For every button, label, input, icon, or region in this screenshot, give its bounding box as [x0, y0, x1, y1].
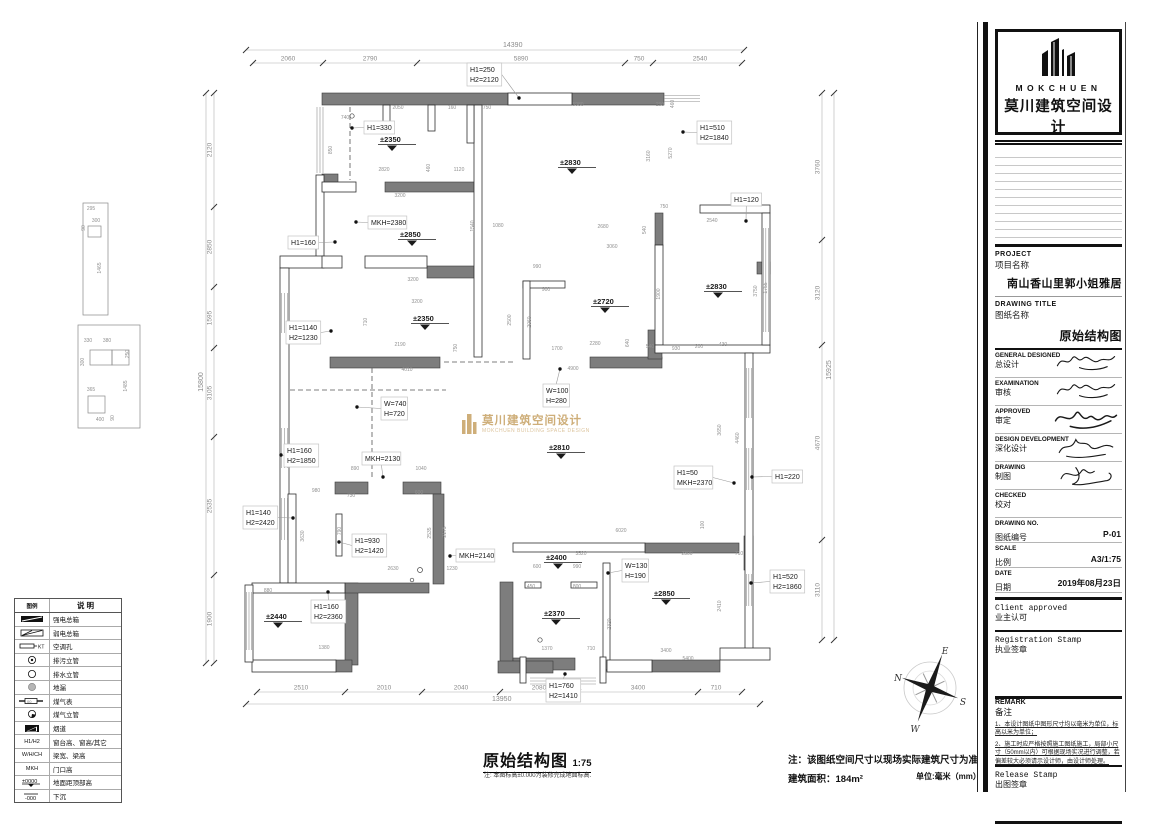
dimension-text: 1080: [492, 223, 503, 229]
dimension-text: 90: [110, 415, 116, 421]
legend-label: 排水立管: [50, 669, 121, 679]
dimension-text: 3105: [207, 385, 214, 400]
dimension-text: 4900: [567, 366, 578, 372]
legend-row: 弱电总箱: [15, 627, 121, 641]
dimension-text: 2540: [693, 56, 708, 63]
dimension-text: 710: [363, 318, 369, 327]
elev-icon: ±0000: [15, 776, 50, 789]
legend-table: 图例 说 明 强电总箱弱电总箱KT空调孔排污立管排水立管地漏00煤气表煤气立管烟…: [14, 598, 122, 803]
title-block: MOKCHUEN 莫川建筑空间设计 PROJECT 项目名称 南山香山里郭小姐雅…: [977, 22, 1128, 792]
dimension-text: 300: [80, 358, 86, 367]
dimension-text: 2080: [532, 685, 547, 692]
sign-row-checked: CHECKED校对: [995, 490, 1122, 518]
elevation-marker: ±2850: [654, 589, 675, 598]
watermark-subtitle: MOKCHUEN BUILDING SPACE DESIGN: [482, 428, 590, 434]
signature: [1050, 351, 1122, 375]
dimension-text: 800: [573, 584, 582, 590]
legend-header: 图例 说 明: [15, 599, 121, 613]
dimension-text: 990: [533, 264, 542, 270]
sign-row-general-designed: GENERAL DESIGNED总设计: [995, 350, 1122, 378]
legend-body: 强电总箱弱电总箱KT空调孔排污立管排水立管地漏00煤气表煤气立管烟道H1/H2窗…: [15, 613, 121, 802]
dimension-text: 400: [96, 417, 105, 423]
dimension-text: 300: [92, 218, 101, 224]
brand-name: MOKCHUEN: [998, 83, 1119, 93]
legend-row: KT空调孔: [15, 640, 121, 654]
text-symbol: MKH: [15, 763, 50, 776]
plan-label-text: H2=2120: [470, 77, 499, 84]
plan-label-text: H1=330: [367, 125, 392, 132]
dimension-text: 1465: [97, 262, 103, 273]
compass-east-label: E: [941, 647, 949, 657]
gas-meter-icon: 00: [15, 695, 50, 708]
plan-label-text: H1=160: [291, 240, 316, 247]
dimension-text: 3160: [646, 150, 652, 161]
dimension-text: 1540: [470, 220, 476, 231]
plan-label-text: MKH=2370: [677, 480, 712, 487]
dimension-text: 750: [483, 105, 492, 111]
plan-label-text: H2=1850: [287, 458, 316, 465]
dimension-text: 930: [672, 346, 681, 352]
overall-dimension: 14390: [503, 42, 523, 49]
release-stamp-en: Release Stamp: [995, 771, 1122, 781]
legend-label: 下沉: [50, 791, 121, 801]
legend-row: 煤气立管: [15, 708, 121, 722]
dimension-text: 2535: [427, 527, 433, 538]
svg-text:-000: -000: [25, 796, 36, 801]
sign-row-approved: APPROVED审定: [995, 406, 1122, 434]
dimension-text: 5270: [668, 147, 674, 158]
dimension-text: 3400: [631, 685, 646, 692]
detail-callout-boxes: [78, 203, 140, 428]
watermark-title: 莫川建筑空间设计: [482, 412, 590, 428]
text-symbol: H1/H2: [15, 735, 50, 748]
logo-box: MOKCHUEN 莫川建筑空间设计: [995, 29, 1122, 135]
plan-label-text: H2=1230: [289, 335, 318, 342]
dimension-text: 3120: [815, 285, 822, 300]
legend-row: 强电总箱: [15, 613, 121, 627]
elevation-marker: ±2720: [593, 297, 614, 306]
sink-icon: -000: [15, 790, 50, 803]
legend-row: 排污立管: [15, 654, 121, 668]
dimension-text: 1700: [551, 346, 562, 352]
plan-label-text: H1=250: [470, 67, 495, 74]
dimension-text: 3400: [660, 648, 671, 654]
brand-name-cn: 莫川建筑空间设计: [998, 95, 1119, 137]
site-note: 注：该图纸空间尺寸以现场实际建筑尺寸为准。: [788, 752, 988, 766]
remark-note: 1、本设计图纸中图形尺寸均以毫米为单位，标高以米为单位；: [995, 721, 1122, 738]
plan-label-text: W=130: [625, 563, 647, 570]
plan-label-text: H=190: [625, 573, 646, 580]
dimension-text: 2280: [589, 341, 600, 347]
legend-label: 空调孔: [50, 641, 121, 651]
dimension-text: 1230: [446, 566, 457, 572]
release-stamp-cn: 出图签章: [995, 781, 1122, 791]
dimension-text: 540: [642, 226, 648, 235]
overall-dimension: 13950: [492, 696, 512, 703]
dimension-text: 3200: [407, 277, 418, 283]
project-label-cn: 项目名称: [995, 259, 1122, 271]
dimension-text: 4670: [815, 435, 822, 450]
signature: [1050, 379, 1122, 403]
divider: [995, 140, 1122, 142]
dimension-text: 3110: [815, 583, 822, 597]
remark-label-cn: 备注: [995, 706, 1122, 718]
watermark: 莫川建筑空间设计 MOKCHUEN BUILDING SPACE DESIGN: [462, 412, 590, 436]
dimension-text: 730: [347, 493, 356, 499]
plan-label-text: MKH=2130: [365, 456, 400, 463]
sewage-riser-icon: [15, 654, 50, 667]
legend-label: 煤气立管: [50, 709, 121, 719]
dimension-text: 2500: [507, 314, 513, 325]
sign-row-examination: EXAMINATION审核: [995, 378, 1122, 406]
plan-label-text: H2=1860: [773, 584, 802, 591]
dimension-text: 160: [448, 105, 457, 111]
legend-header-desc: 说 明: [50, 600, 121, 611]
registration-stamp-en: Registration Stamp: [995, 636, 1122, 646]
plan-label-text: H1=160: [287, 448, 312, 455]
compass-south-label: S: [960, 698, 966, 708]
dimension-text: 3060: [606, 244, 617, 250]
legend-row: 地漏: [15, 681, 121, 695]
legend-row: W/H/CH梁宽、梁高: [15, 749, 121, 763]
svg-text:KT: KT: [38, 645, 44, 651]
plan-label-text: H1=160: [314, 604, 339, 611]
plan-label-text: H1=510: [700, 125, 725, 132]
legend-row: 排水立管: [15, 667, 121, 681]
legend-row: -000下沉: [15, 790, 121, 803]
info-row-date: DATE日期2019年08月23日: [995, 568, 1122, 593]
registration-stamp-cn: 执业签章: [995, 646, 1122, 656]
dimension-text: 2850: [207, 239, 214, 254]
release-stamp-block: Release Stamp 出图签章: [995, 767, 1122, 817]
signature: [1050, 407, 1122, 431]
dimension-text: 460: [426, 164, 432, 173]
dimension-text: 2535: [207, 498, 214, 513]
dimension-text: 2410: [717, 600, 723, 611]
dimension-text: 1380: [318, 645, 329, 651]
dimension-text: 2060: [281, 56, 296, 63]
dimension-text: 450: [527, 584, 536, 590]
client-approved-block: Client approved 业主认可: [995, 600, 1122, 626]
dimension-text: 2630: [387, 566, 398, 572]
weak-power-box-icon: [15, 627, 50, 640]
elevation-marker: ±2830: [706, 282, 727, 291]
plan-label-text: H2=1420: [355, 548, 384, 555]
plan-label-text: H2=1410: [549, 693, 578, 700]
legend-row: 烟道: [15, 722, 121, 736]
dimension-text: 5980: [572, 102, 583, 108]
sheet-scale: 1:75: [572, 758, 591, 769]
dimension-text: 6020: [615, 528, 626, 534]
plan-label-text: H1=50: [677, 470, 698, 477]
dimension-text: 5400: [682, 656, 693, 662]
dimension-text: 5890: [514, 56, 529, 63]
plan-label-text: H1=220: [775, 474, 800, 481]
dimension-text: 2820: [378, 167, 389, 173]
dimension-text: 250: [125, 350, 131, 359]
dimension-text: 2010: [377, 685, 392, 692]
legend-label: 烟道: [50, 723, 121, 733]
dimension-text: 710: [735, 551, 744, 557]
plan-label-text: H1=1140: [289, 325, 317, 332]
legend-row: MKH门口高: [15, 763, 121, 777]
dimension-text: 750: [634, 56, 645, 63]
remark-block: REMARK 备注 1、本设计图纸中图形尺寸均以毫米为单位，标高以米为单位；2、…: [995, 699, 1122, 761]
dimension-text: 200: [695, 344, 704, 350]
dimension-text: 540: [646, 344, 655, 350]
project-label-en: PROJECT: [995, 251, 1122, 258]
plan-label-text: H1=140: [246, 510, 271, 517]
drawing-title-label-cn: 图纸名称: [995, 309, 1122, 321]
dimension-text: 710: [711, 685, 722, 692]
ac-hole-icon: KT: [15, 640, 50, 653]
dimension-text: 880: [264, 588, 273, 594]
dimension-text: 750: [660, 204, 669, 210]
compass-rose: E N S W: [893, 647, 966, 735]
legend-label: 窗台高、窗高/其它: [50, 737, 121, 747]
plan-label-text: H1=930: [355, 538, 380, 545]
legend-label: 门口高: [50, 764, 121, 774]
dimension-text: 2320: [607, 618, 613, 629]
legend-label: 排污立管: [50, 655, 121, 665]
drawing-title-value: 原始结构图: [995, 327, 1122, 344]
dimension-text: 3520: [575, 551, 586, 557]
dimension-text: 850: [328, 146, 334, 155]
legend-label: 弱电总箱: [50, 628, 121, 638]
annotation-layer: 2060279058907502540251020102040208034007…: [80, 42, 837, 707]
sheet-title-note: 注: 本图标高±0.000为装修完成地面标高.: [484, 770, 591, 779]
overall-dimension: 15800: [198, 372, 205, 392]
elevation-marker: ±2370: [544, 609, 565, 618]
title-block-bottom-border: [995, 821, 1122, 824]
plan-label-text: W=740: [384, 401, 406, 408]
remark-note: 2、施工时应严格按照施工图纸施工，局部小尺寸（50mm以内）可根据现场实况进行调…: [995, 741, 1122, 767]
dimension-text: 290: [656, 102, 665, 108]
elevation-marker: ±2440: [266, 612, 287, 621]
plan-label-text: H=720: [384, 411, 405, 418]
dimension-text: 1595: [207, 310, 214, 325]
dimension-text: 295: [87, 206, 96, 212]
plan-label-text: H1=760: [549, 683, 574, 690]
signature-rows: GENERAL DESIGNED总设计EXAMINATION审核APPROVED…: [995, 350, 1122, 518]
building-area: 建筑面积：184m²: [788, 771, 863, 785]
dimension-text: 1040: [415, 466, 426, 472]
dimension-text: 365: [87, 387, 96, 393]
text-symbol: W/H/CH: [15, 749, 50, 762]
drain-riser-icon: [15, 667, 50, 680]
signature: [1050, 435, 1122, 459]
plan-label-text: H2=2420: [246, 520, 275, 527]
dimension-text: 2040: [454, 685, 469, 692]
compass-west-label: W: [910, 725, 920, 735]
flue-icon: [15, 722, 50, 735]
dimension-text: 4010: [401, 367, 412, 373]
dimension-text: 2790: [363, 56, 378, 63]
strong-power-box-icon: [15, 613, 50, 626]
project-section: PROJECT 项目名称 南山香山里郭小姐雅居: [995, 247, 1122, 291]
elevation-marker: ±2400: [546, 553, 567, 562]
remark-label-en: REMARK: [995, 699, 1122, 706]
legend-header-symbol: 图例: [15, 599, 50, 612]
dimension-text: 100: [700, 521, 706, 530]
title-block-border: [1125, 22, 1126, 792]
dimension-text: 790: [337, 527, 343, 536]
dimension-text: 1900: [207, 611, 214, 626]
elevation-marker: ±2350: [413, 314, 434, 323]
dimension-text: 3650: [717, 424, 723, 435]
plan-label-text: MKH=2380: [371, 220, 406, 227]
dimension-text: 3750: [753, 285, 759, 296]
dimension-text: 750: [453, 344, 459, 353]
dimension-text: 900: [542, 287, 551, 293]
elevation-marker: ±2810: [549, 443, 570, 452]
dimension-text: 3630: [300, 530, 306, 541]
dimension-text: 1485: [123, 380, 129, 391]
legend-label: 煤气表: [50, 696, 121, 706]
contact-lines: [995, 150, 1122, 240]
client-approved-en: Client approved: [995, 604, 1122, 614]
elevation-marker: ±2850: [400, 230, 421, 239]
compass-north-label: N: [893, 674, 903, 684]
signature: [1050, 463, 1122, 487]
unit-note: 单位:毫米（mm）: [916, 771, 981, 782]
dimension-text: 4460: [735, 432, 741, 443]
dimension-text: 3200: [411, 299, 422, 305]
info-row-drawing-no-: DRAWING NO.图纸编号P-01: [995, 518, 1122, 543]
dimension-text: 1370: [541, 646, 552, 652]
dimension-text: 980: [312, 488, 321, 494]
info-rows: DRAWING NO.图纸编号P-01SCALE比例A3/1:75DATE日期2…: [995, 518, 1122, 593]
plumbing-symbols: [350, 114, 542, 642]
client-approved-cn: 业主认可: [995, 614, 1122, 624]
dimension-text: 430: [719, 342, 728, 348]
dimension-text: 740: [341, 115, 350, 121]
project-name: 南山香山里郭小姐雅居: [995, 275, 1122, 291]
dimension-text: 640: [625, 339, 631, 348]
dimension-text: 380: [103, 338, 112, 344]
overall-dimension: 15925: [826, 360, 833, 380]
dimension-text: 3760: [815, 159, 822, 174]
dimension-text: 990: [573, 564, 582, 570]
dimension-text: 1120: [454, 167, 465, 173]
plan-label-text: H2=1840: [700, 135, 729, 142]
registration-stamp-block: Registration Stamp 执业签章: [995, 632, 1122, 692]
plan-label-text: H1=520: [773, 574, 798, 581]
plan-label-text: H=280: [546, 398, 567, 405]
mokchuen-logo-icon: [1038, 36, 1080, 76]
gas-riser-icon: [15, 708, 50, 721]
legend-label: 地面距顶部高: [50, 777, 121, 787]
plan-label-text: H1=120: [734, 197, 759, 204]
legend-label: 地漏: [50, 682, 121, 692]
legend-label: 强电总箱: [50, 614, 121, 624]
plan-label-text: W=100: [546, 388, 568, 395]
dimension-text: 2050: [392, 105, 403, 111]
dimension-text: 2060: [527, 316, 533, 327]
sheet-title-text: 原始结构图: [483, 753, 568, 770]
dimension-text: 2680: [597, 224, 608, 230]
sign-row-drawing: DRAWING制图: [995, 462, 1122, 490]
floor-drain-icon: [15, 681, 50, 694]
dimension-text: 2540: [706, 218, 717, 224]
dimension-text: 1755: [763, 282, 769, 293]
dimension-text: 3200: [394, 193, 405, 199]
drawing-title-section: DRAWING TITLE 图纸名称 原始结构图: [995, 297, 1122, 344]
concrete-walls: [322, 93, 770, 673]
sign-row-design-development: DESIGN DEVELOPMENT深化设计: [995, 434, 1122, 462]
legend-row: H1/H2窗台高、窗高/其它: [15, 735, 121, 749]
dimension-text: 710: [587, 646, 596, 652]
drawing-title-label-en: DRAWING TITLE: [995, 301, 1122, 308]
dimension-text: 90: [81, 225, 87, 231]
title-block-bar: [983, 22, 988, 792]
plan-label-text: MKH=2140: [459, 553, 494, 560]
plan-label-text: H2=2360: [314, 614, 343, 621]
legend-label: 梁宽、梁高: [50, 750, 121, 760]
svg-text:00: 00: [27, 699, 32, 704]
dimension-text: 460: [670, 100, 676, 109]
dimension-text: 2120: [207, 142, 214, 157]
dimension-text: 330: [84, 338, 93, 344]
legend-row: 00煤气表: [15, 695, 121, 709]
dimension-text: 890: [351, 466, 360, 472]
dimension-text: 600: [533, 564, 542, 570]
dimension-text: 2190: [394, 342, 405, 348]
dimension-text: 2300: [681, 551, 692, 557]
info-row-scale: SCALE比例A3/1:75: [995, 543, 1122, 568]
dimension-text: 600: [415, 490, 424, 496]
dimension-text: 1900: [656, 288, 662, 299]
remark-notes: 1、本设计图纸中图形尺寸均以毫米为单位，标高以米为单位；2、施工时应严格按照施工…: [995, 721, 1122, 767]
dimension-text: 2175: [442, 526, 448, 537]
elevation-marker: ±2830: [560, 158, 581, 167]
drawing-sheet: { "title_block": { "logo": {"brand": "MO…: [0, 0, 1150, 813]
mokchuen-watermark-icon: [462, 412, 478, 436]
dimension-text: 2510: [294, 685, 309, 692]
elevation-marker: ±2350: [380, 135, 401, 144]
legend-row: ±0000地面距顶部高: [15, 776, 121, 790]
